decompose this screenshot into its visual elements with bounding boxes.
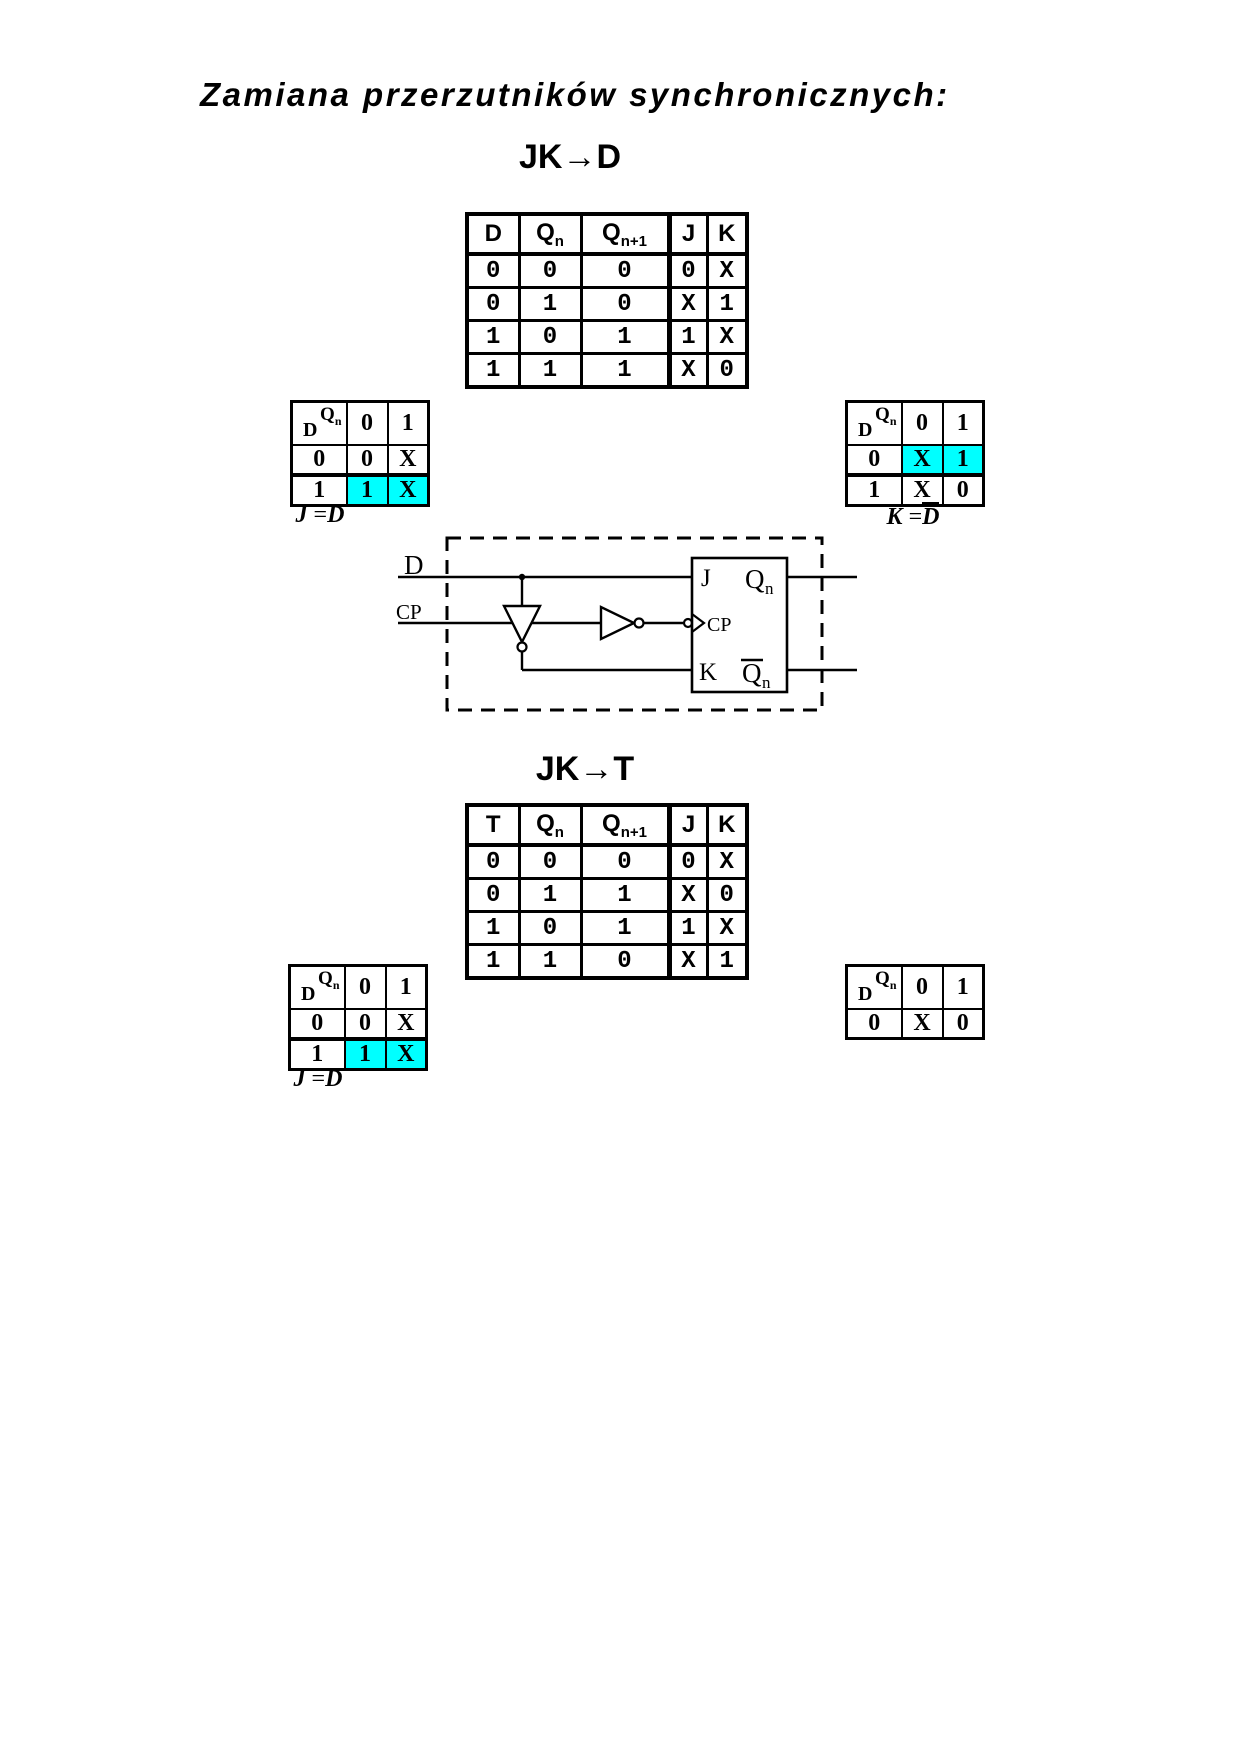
- kmap-corner: Qn D: [847, 966, 902, 1010]
- truth-table-cell: 1: [467, 945, 519, 979]
- truth-table-row: 110X1: [467, 945, 747, 979]
- kmap-col-label: 0: [347, 402, 388, 446]
- column-header: J: [669, 214, 707, 254]
- truth-table-cell: 1: [581, 912, 669, 945]
- section-heading-jk-d: JK→D: [430, 138, 710, 177]
- document-page: Zamiana przerzutników synchronicznych: J…: [0, 0, 1240, 1754]
- ff-label-cp: CP: [707, 614, 731, 636]
- truth-table-cell: 1: [467, 321, 519, 354]
- truth-table-cell: 0: [519, 845, 581, 879]
- kmap-row-label: 0: [847, 1009, 902, 1039]
- kmap-cell-highlighted: 1: [345, 1039, 386, 1070]
- kmap-col-label: 0: [345, 966, 386, 1010]
- column-header: Qn: [519, 214, 581, 254]
- truth-table-cell: 0: [467, 845, 519, 879]
- kmap-corner-col-var: Qn: [875, 968, 896, 993]
- kmap-corner-col-var: Qn: [318, 968, 339, 993]
- column-header: Qn+1: [581, 214, 669, 254]
- truth-table-jk-d: DQnQn+1JK 0000X010X11011X111X0: [465, 212, 749, 389]
- kmap-cell-highlighted: 1: [943, 445, 984, 475]
- ff-label-qbar-sub: n: [762, 673, 771, 692]
- kmap-corner-row-var: D: [303, 419, 317, 442]
- truth-table-cell: 0: [581, 288, 669, 321]
- input-label-d: D: [404, 550, 424, 580]
- kmap-cell-highlighted: X: [388, 475, 429, 506]
- truth-table-cell: X: [669, 354, 707, 388]
- truth-table-cell: 0: [467, 879, 519, 912]
- formula-k-equals-not-d: K =D: [843, 502, 983, 531]
- truth-table-cell: 1: [581, 879, 669, 912]
- truth-table-cell: X: [707, 912, 747, 945]
- truth-table-row: 011X0: [467, 879, 747, 912]
- kmap-jk-d-k: Qn D 0 1 0 X 1 1 X 0: [845, 400, 985, 507]
- kmap-row-label: 1: [292, 475, 347, 506]
- truth-table-cell: 0: [707, 879, 747, 912]
- truth-table-cell: 1: [707, 288, 747, 321]
- truth-table-cell: 0: [519, 254, 581, 288]
- column-header: Qn+1: [581, 805, 669, 845]
- kmap-cell: X: [902, 475, 943, 506]
- kmap-row-label: 1: [290, 1039, 345, 1070]
- truth-table-row: 010X1: [467, 288, 747, 321]
- kmap-corner-row-var: D: [858, 419, 872, 442]
- kmap-cell-highlighted: X: [902, 445, 943, 475]
- truth-table-cell: X: [707, 254, 747, 288]
- kmap-cell: X: [388, 445, 429, 475]
- truth-table-cell: X: [707, 321, 747, 354]
- truth-table-cell: 0: [581, 945, 669, 979]
- kmap-row-label: 0: [292, 445, 347, 475]
- truth-table-cell: 0: [519, 321, 581, 354]
- inverter-bubble-icon: [518, 643, 527, 652]
- truth-table-cell: 0: [581, 845, 669, 879]
- kmap-col-label: 0: [902, 966, 943, 1010]
- kmap-col-label: 1: [386, 966, 427, 1010]
- column-header: T: [467, 805, 519, 845]
- kmap-row-label: 0: [847, 445, 902, 475]
- inverter-right-icon: [601, 607, 634, 639]
- truth-table-cell: 1: [519, 288, 581, 321]
- kmap-jk-d-j: Qn D 0 1 0 0 X 1 1 X: [290, 400, 430, 507]
- kmap-corner-row-var: D: [858, 983, 872, 1006]
- ff-label-q-sub: n: [765, 579, 774, 598]
- kmap-jk-t-k: Qn D 0 1 0 X 0: [845, 964, 985, 1040]
- truth-table-header-row: TQnQn+1JK: [467, 805, 747, 845]
- column-header: J: [669, 805, 707, 845]
- kmap-row-label: 0: [290, 1009, 345, 1039]
- kmap-col-label: 0: [902, 402, 943, 446]
- truth-table-cell: 1: [669, 321, 707, 354]
- kmap-cell: 0: [943, 475, 984, 506]
- truth-table-cell: 1: [581, 321, 669, 354]
- kmap-col-label: 1: [943, 402, 984, 446]
- truth-table-cell: 0: [467, 254, 519, 288]
- ff-label-k: K: [699, 659, 717, 686]
- kmap-col-label: 1: [388, 402, 429, 446]
- truth-table-row: 111X0: [467, 354, 747, 388]
- kmap-corner-col-var: Qn: [875, 404, 896, 429]
- truth-table-header-row: DQnQn+1JK: [467, 214, 747, 254]
- truth-table-cell: 0: [581, 254, 669, 288]
- truth-table-cell: X: [669, 879, 707, 912]
- truth-table-cell: 1: [581, 354, 669, 388]
- ff-label-q: Q: [745, 564, 765, 594]
- truth-table-cell: 1: [669, 912, 707, 945]
- truth-table-cell: 0: [467, 288, 519, 321]
- truth-table-row: 0000X: [467, 845, 747, 879]
- column-header: D: [467, 214, 519, 254]
- truth-table-cell: X: [707, 845, 747, 879]
- column-header: K: [707, 214, 747, 254]
- truth-table-row: 0000X: [467, 254, 747, 288]
- kmap-corner: Qn D: [847, 402, 902, 446]
- inverter-bubble-icon: [635, 619, 644, 628]
- kmap-cell: X: [902, 1009, 943, 1039]
- truth-table-cell: X: [669, 288, 707, 321]
- truth-table-row: 1011X: [467, 912, 747, 945]
- truth-table-cell: 1: [519, 879, 581, 912]
- kmap-cell-highlighted: 1: [347, 475, 388, 506]
- truth-table-cell: 1: [707, 945, 747, 979]
- page-title: Zamiana przerzutników synchronicznych:: [200, 76, 950, 114]
- kmap-corner-col-var: Qn: [320, 404, 341, 429]
- kmap-col-label: 1: [943, 966, 984, 1010]
- kmap-cell: 0: [345, 1009, 386, 1039]
- kmap-corner: Qn D: [290, 966, 345, 1010]
- column-header: K: [707, 805, 747, 845]
- truth-table-cell: 1: [519, 354, 581, 388]
- circuit-diagram: D CP J CP K Q n Q n: [380, 528, 870, 720]
- truth-table-cell: 0: [669, 845, 707, 879]
- ff-label-qbar: Q: [742, 658, 762, 688]
- kmap-row-label: 1: [847, 475, 902, 506]
- column-header: Qn: [519, 805, 581, 845]
- section-heading-jk-t: JK→T: [445, 750, 725, 789]
- kmap-cell-highlighted: X: [386, 1039, 427, 1070]
- kmap-corner: Qn D: [292, 402, 347, 446]
- formula-j-equals-d: J =D: [248, 1066, 388, 1093]
- input-label-cp: CP: [396, 600, 422, 624]
- truth-table-cell: 0: [669, 254, 707, 288]
- truth-table-cell: 1: [519, 945, 581, 979]
- formula-j-equals-d: J =D: [250, 502, 390, 529]
- kmap-corner-row-var: D: [301, 983, 315, 1006]
- kmap-cell: X: [386, 1009, 427, 1039]
- truth-table-cell: 1: [467, 354, 519, 388]
- kmap-cell: 0: [943, 1009, 984, 1039]
- ff-label-j: J: [701, 565, 711, 592]
- truth-table-cell: 0: [707, 354, 747, 388]
- truth-table-cell: 0: [519, 912, 581, 945]
- truth-table-row: 1011X: [467, 321, 747, 354]
- truth-table-cell: X: [669, 945, 707, 979]
- truth-table-jk-t: TQnQn+1JK 0000X011X01011X110X1: [465, 803, 749, 980]
- kmap-jk-t-j: Qn D 0 1 0 0 X 1 1 X: [288, 964, 428, 1071]
- truth-table-cell: 1: [467, 912, 519, 945]
- kmap-cell: 0: [347, 445, 388, 475]
